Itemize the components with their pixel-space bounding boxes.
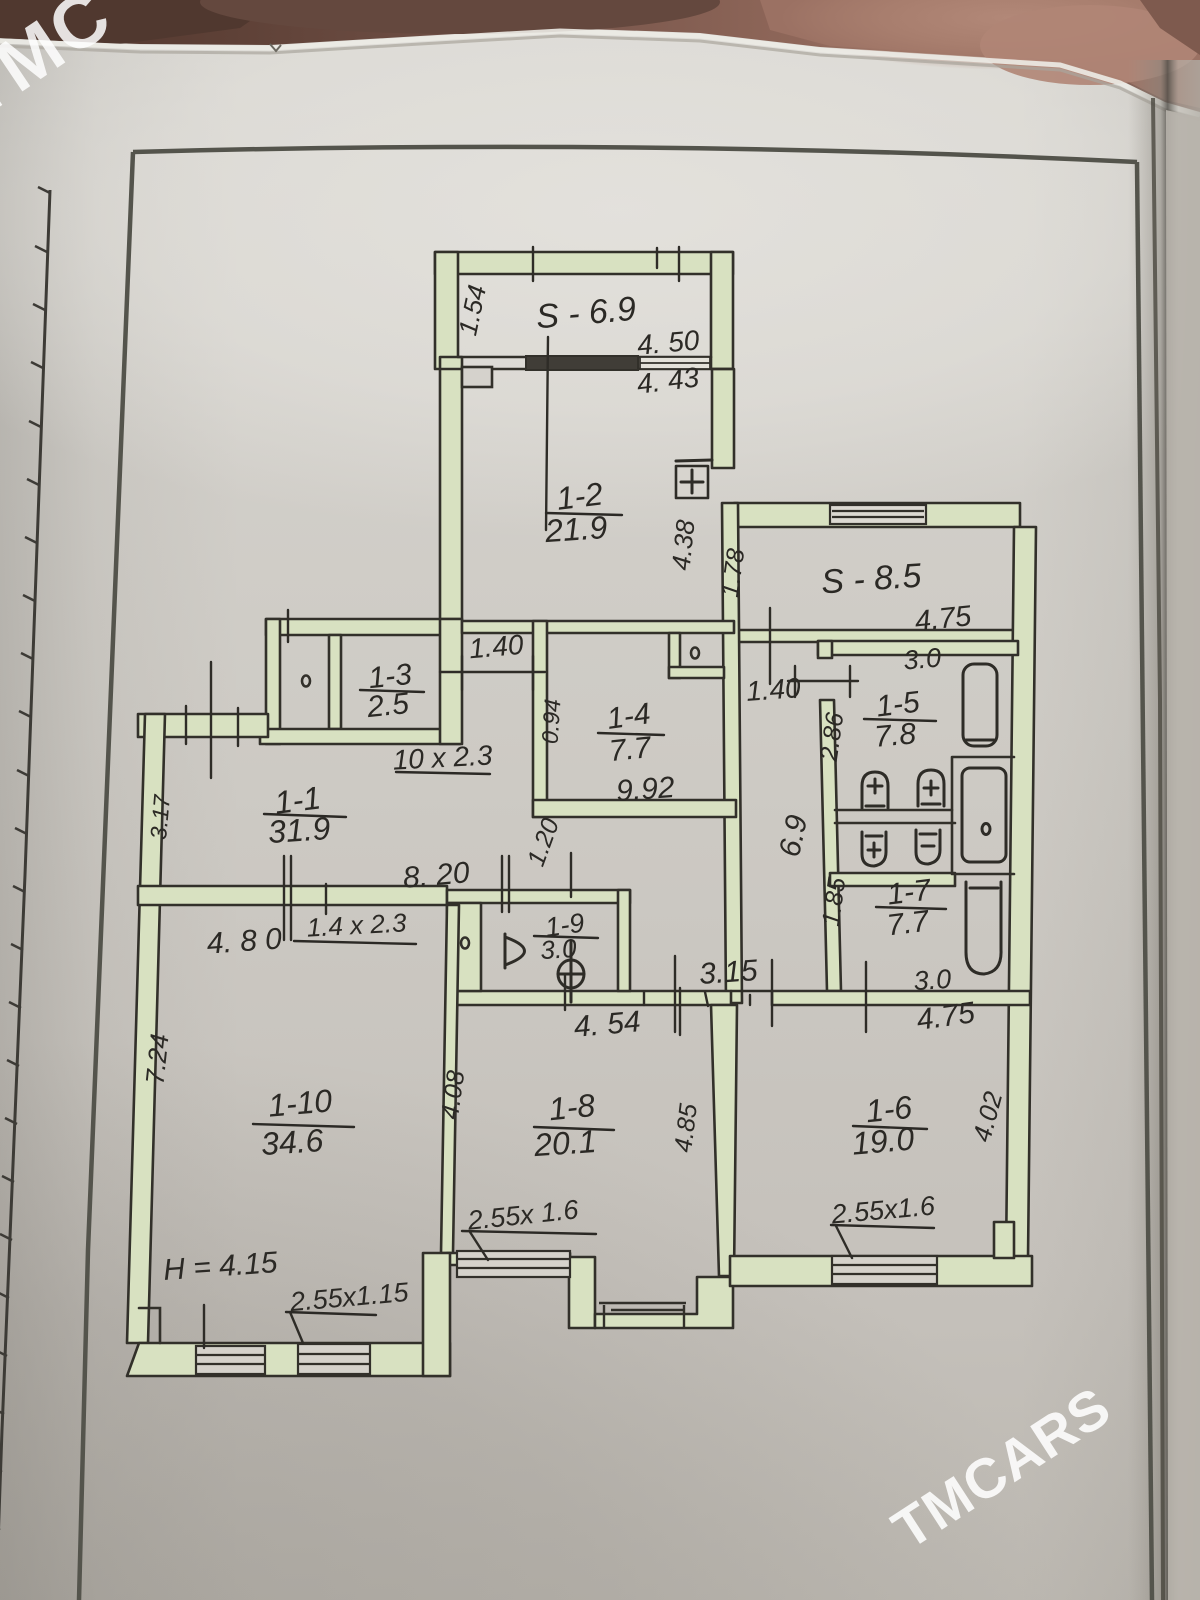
svg-text:0.94: 0.94 [536, 698, 565, 744]
svg-text:4. 54: 4. 54 [572, 1005, 641, 1044]
svg-text:4.85: 4.85 [669, 1102, 703, 1154]
svg-text:10 x 2.3: 10 x 2.3 [392, 739, 494, 775]
svg-text:1.40: 1.40 [745, 672, 802, 707]
svg-text:7.7: 7.7 [885, 904, 932, 942]
svg-text:8. 20: 8. 20 [401, 856, 471, 895]
svg-text:3.17: 3.17 [145, 793, 175, 841]
svg-text:4.38: 4.38 [665, 518, 700, 572]
svg-text:7.8: 7.8 [873, 717, 918, 754]
svg-text:3.0: 3.0 [913, 964, 953, 997]
svg-text:3.15: 3.15 [698, 954, 759, 991]
svg-text:3.0: 3.0 [902, 642, 942, 675]
svg-text:1.4 x 2.3: 1.4 x 2.3 [306, 907, 408, 942]
svg-text:4. 50: 4. 50 [636, 324, 701, 360]
svg-text:7.24: 7.24 [139, 1032, 174, 1085]
svg-text:34.6: 34.6 [260, 1122, 325, 1162]
svg-text:4.75: 4.75 [913, 600, 973, 638]
svg-text:9.92: 9.92 [615, 771, 676, 808]
svg-text:7.7: 7.7 [608, 731, 654, 768]
svg-text:1-4: 1-4 [605, 697, 653, 736]
svg-text:1-10: 1-10 [267, 1082, 334, 1123]
svg-text:1.40: 1.40 [468, 629, 525, 665]
svg-text:1-8: 1-8 [547, 1087, 597, 1128]
svg-text:4. 8 0: 4. 8 0 [206, 922, 283, 960]
svg-text:S - 8.5: S - 8.5 [820, 557, 923, 602]
